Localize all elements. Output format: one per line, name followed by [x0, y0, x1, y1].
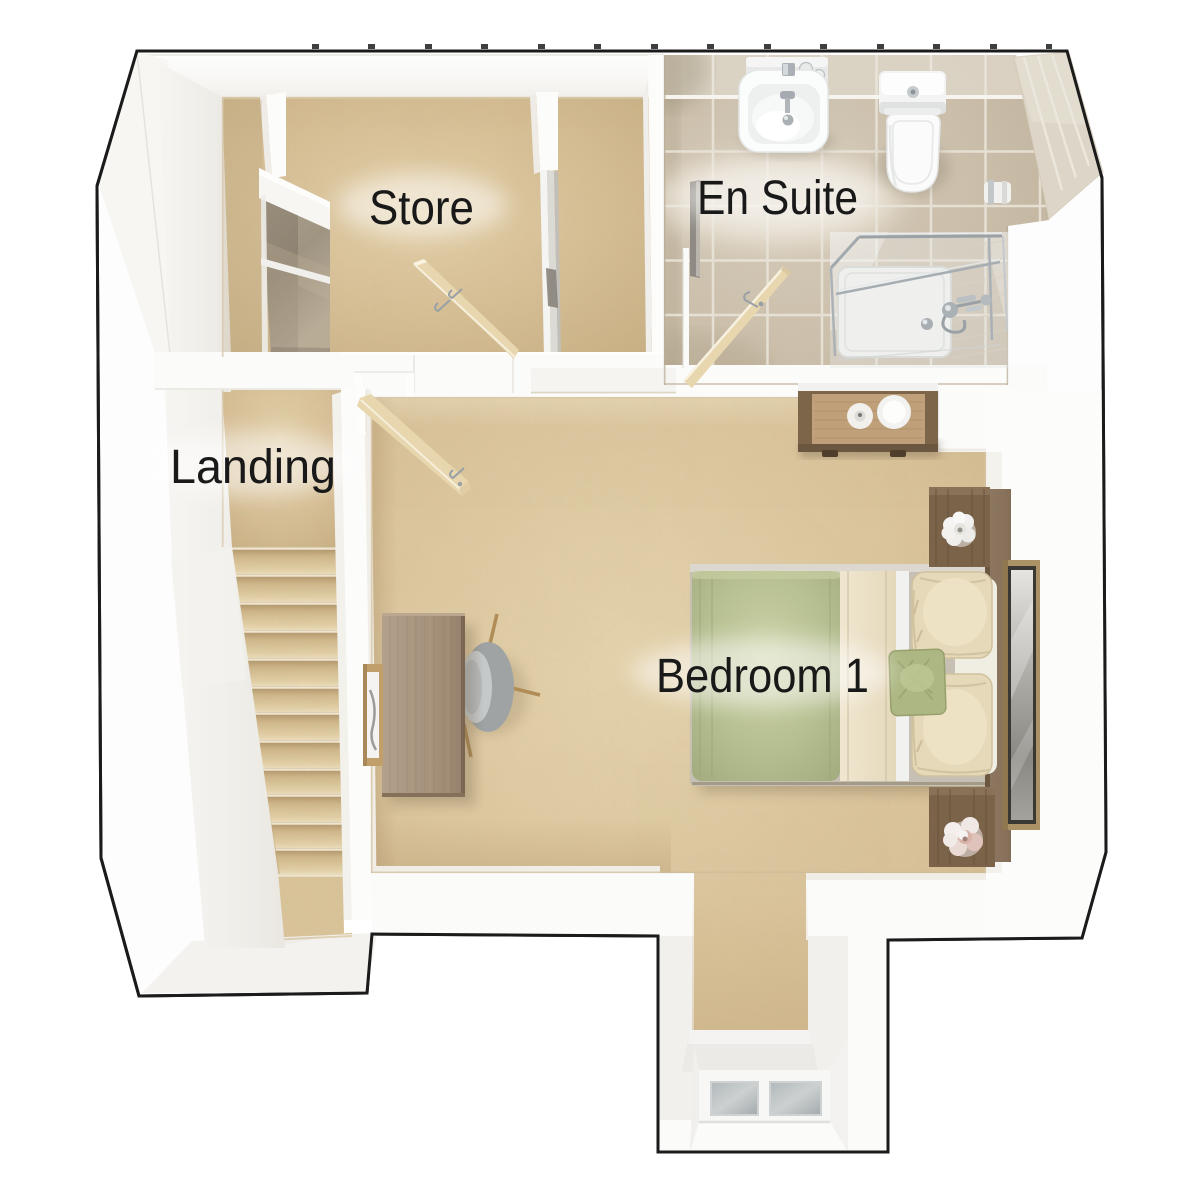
svg-text:Landing: Landing: [170, 441, 336, 494]
svg-text:En Suite: En Suite: [697, 172, 858, 225]
svg-text:Store: Store: [369, 182, 474, 235]
svg-text:Bedroom 1: Bedroom 1: [656, 650, 869, 703]
